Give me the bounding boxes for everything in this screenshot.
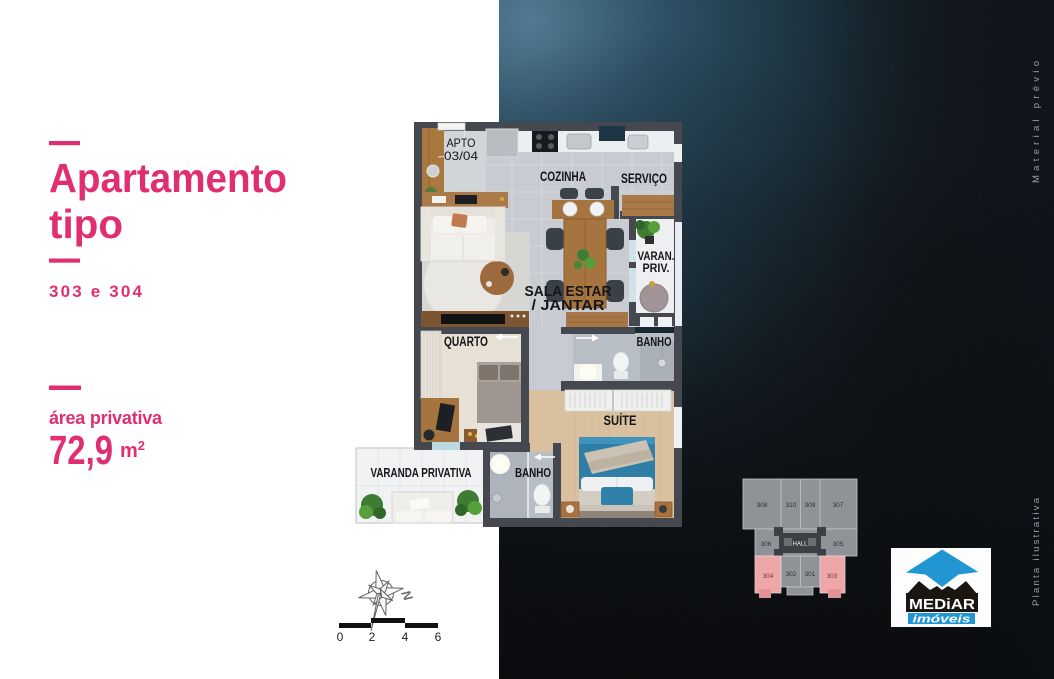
svg-text:VARANDA PRIVATIVA: VARANDA PRIVATIVA	[371, 466, 472, 480]
svg-text:303 e 304: 303 e 304	[49, 282, 143, 301]
svg-text:APTO: APTO	[447, 136, 476, 150]
svg-text:BANHO: BANHO	[515, 466, 551, 480]
svg-text:QUARTO: QUARTO	[444, 334, 488, 349]
svg-text:303: 303	[827, 573, 838, 580]
svg-text:307: 307	[833, 502, 844, 509]
svg-text:305: 305	[833, 541, 844, 548]
svg-text:302: 302	[786, 571, 797, 578]
svg-text:COZINHA: COZINHA	[540, 169, 586, 184]
svg-text:0: 0	[337, 630, 344, 644]
svg-text:301: 301	[805, 571, 816, 578]
svg-text:Planta ilustrativa: Planta ilustrativa	[1031, 497, 1042, 606]
svg-text:03/04: 03/04	[444, 149, 478, 163]
svg-text:SUÍTE: SUÍTE	[604, 413, 637, 428]
svg-text:/ JANTAR: / JANTAR	[532, 298, 606, 314]
svg-text:MEDiAR: MEDiAR	[909, 596, 975, 613]
svg-text:72,9: 72,9	[49, 427, 113, 473]
svg-text:2: 2	[369, 630, 376, 644]
svg-text:tipo: tipo	[49, 201, 123, 247]
svg-text:6: 6	[435, 630, 442, 644]
svg-text:304: 304	[763, 573, 774, 580]
svg-text:306: 306	[761, 541, 772, 548]
svg-text:imóveis: imóveis	[913, 614, 971, 626]
svg-text:Apartamento: Apartamento	[49, 155, 287, 201]
svg-text:PRIV.: PRIV.	[643, 261, 670, 275]
svg-text:BANHO: BANHO	[637, 335, 672, 349]
svg-text:SERVIÇO: SERVIÇO	[621, 171, 667, 186]
svg-text:308: 308	[757, 502, 768, 509]
svg-text:310: 310	[786, 502, 797, 509]
svg-text:309: 309	[805, 502, 816, 509]
svg-text:4: 4	[402, 630, 409, 644]
svg-text:área privativa: área privativa	[49, 408, 163, 428]
svg-text:HALL: HALL	[792, 542, 808, 548]
